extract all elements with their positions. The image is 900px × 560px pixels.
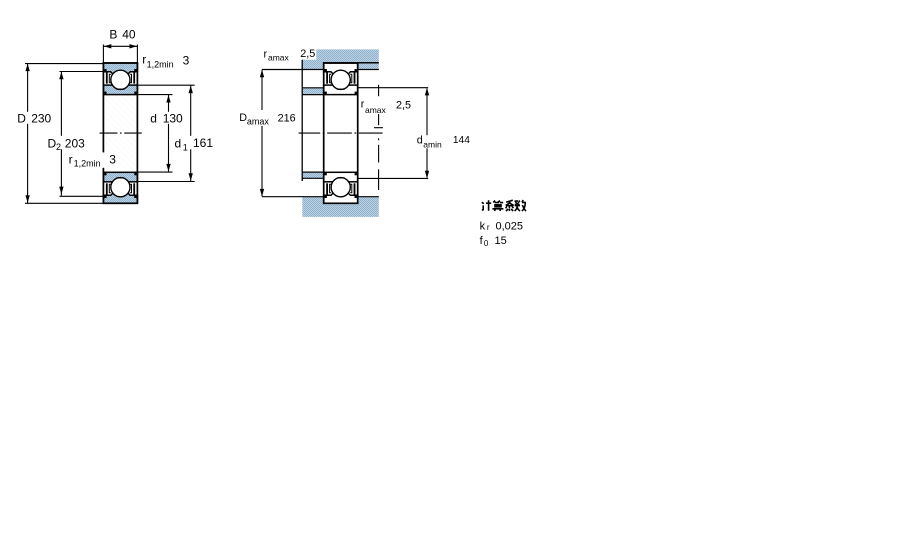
- svg-text:1: 1: [183, 142, 188, 152]
- svg-text:d: d: [150, 111, 157, 125]
- svg-text:amax: amax: [365, 105, 387, 115]
- svg-text:2,5: 2,5: [396, 100, 411, 112]
- svg-text:amin: amin: [423, 140, 442, 150]
- svg-text:2: 2: [56, 142, 61, 152]
- svg-text:230: 230: [31, 111, 51, 125]
- svg-text:130: 130: [163, 111, 183, 125]
- svg-text:0: 0: [484, 239, 489, 248]
- svg-text:r: r: [487, 223, 490, 232]
- svg-text:amax: amax: [247, 117, 270, 127]
- svg-text:r: r: [69, 152, 73, 166]
- svg-text:161: 161: [193, 136, 213, 150]
- svg-text:1,2min: 1,2min: [147, 60, 174, 70]
- svg-text:0,025: 0,025: [496, 220, 524, 232]
- svg-text:203: 203: [65, 136, 85, 150]
- svg-text:2,5: 2,5: [300, 48, 315, 60]
- svg-text:3: 3: [183, 53, 190, 67]
- svg-text:3: 3: [109, 153, 116, 167]
- svg-text:B: B: [109, 28, 117, 42]
- svg-text:1,2min: 1,2min: [74, 159, 101, 169]
- svg-text:d: d: [417, 134, 423, 146]
- svg-text:D: D: [17, 111, 26, 125]
- svg-text:r: r: [264, 48, 268, 60]
- svg-text:144: 144: [453, 135, 470, 146]
- svg-text:216: 216: [278, 113, 296, 125]
- svg-text:40: 40: [122, 28, 136, 42]
- svg-text:k: k: [480, 220, 486, 232]
- svg-text:d: d: [175, 137, 182, 151]
- svg-text:amax: amax: [268, 52, 290, 62]
- svg-text:15: 15: [495, 235, 507, 247]
